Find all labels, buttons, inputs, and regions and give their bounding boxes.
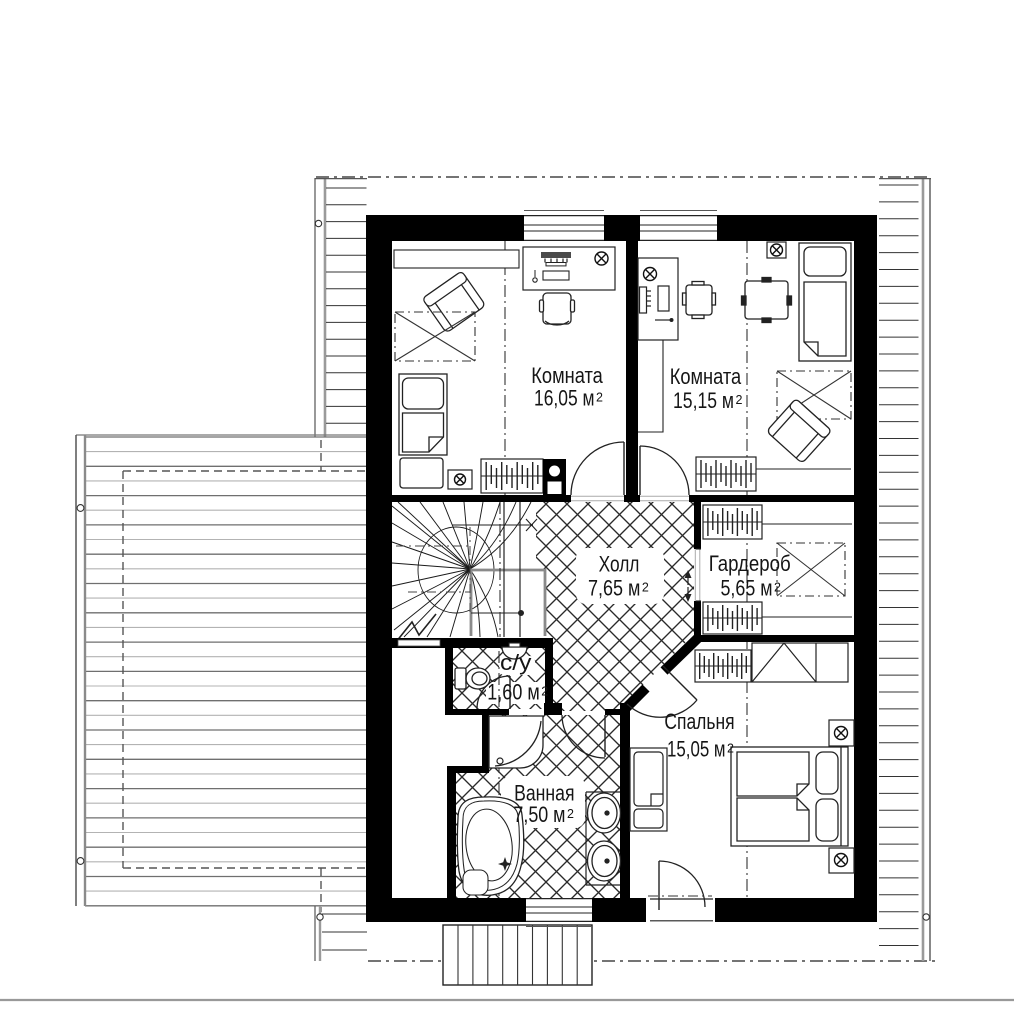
svg-text:7,50 м: 7,50 м bbox=[513, 802, 565, 827]
svg-text:2: 2 bbox=[727, 741, 734, 755]
svg-text:1,60 м: 1,60 м bbox=[487, 680, 539, 705]
svg-text:Гардероб: Гардероб bbox=[709, 551, 791, 576]
svg-text:Комната: Комната bbox=[670, 364, 742, 389]
svg-text:с/у: с/у bbox=[500, 650, 531, 675]
svg-text:Комната: Комната bbox=[531, 363, 603, 388]
svg-text:5,65 м: 5,65 м bbox=[721, 576, 773, 601]
svg-text:15,15 м: 15,15 м bbox=[673, 388, 734, 413]
svg-text:2: 2 bbox=[642, 580, 649, 594]
svg-text:16,05 м: 16,05 м bbox=[534, 386, 595, 411]
svg-text:7,65 м: 7,65 м bbox=[588, 576, 640, 601]
svg-text:2: 2 bbox=[736, 393, 743, 407]
svg-text:Спальня: Спальня bbox=[664, 709, 734, 734]
svg-text:2: 2 bbox=[596, 390, 603, 404]
svg-text:2: 2 bbox=[567, 807, 574, 821]
svg-text:15,05 м: 15,05 м bbox=[667, 737, 726, 762]
svg-text:2: 2 bbox=[774, 580, 781, 594]
svg-text:2: 2 bbox=[541, 684, 548, 698]
svg-text:Холл: Холл bbox=[599, 552, 640, 577]
